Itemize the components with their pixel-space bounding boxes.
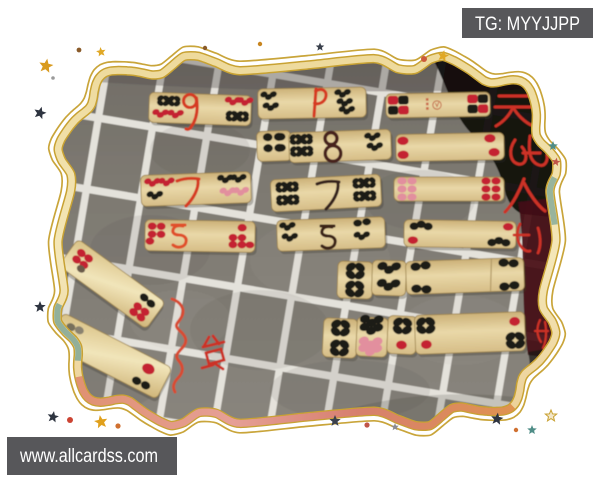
svg-text:TG: MYYJJPP: TG: MYYJJPP	[475, 14, 580, 35]
svg-text:www.allcardss.com: www.allcardss.com	[19, 446, 158, 467]
